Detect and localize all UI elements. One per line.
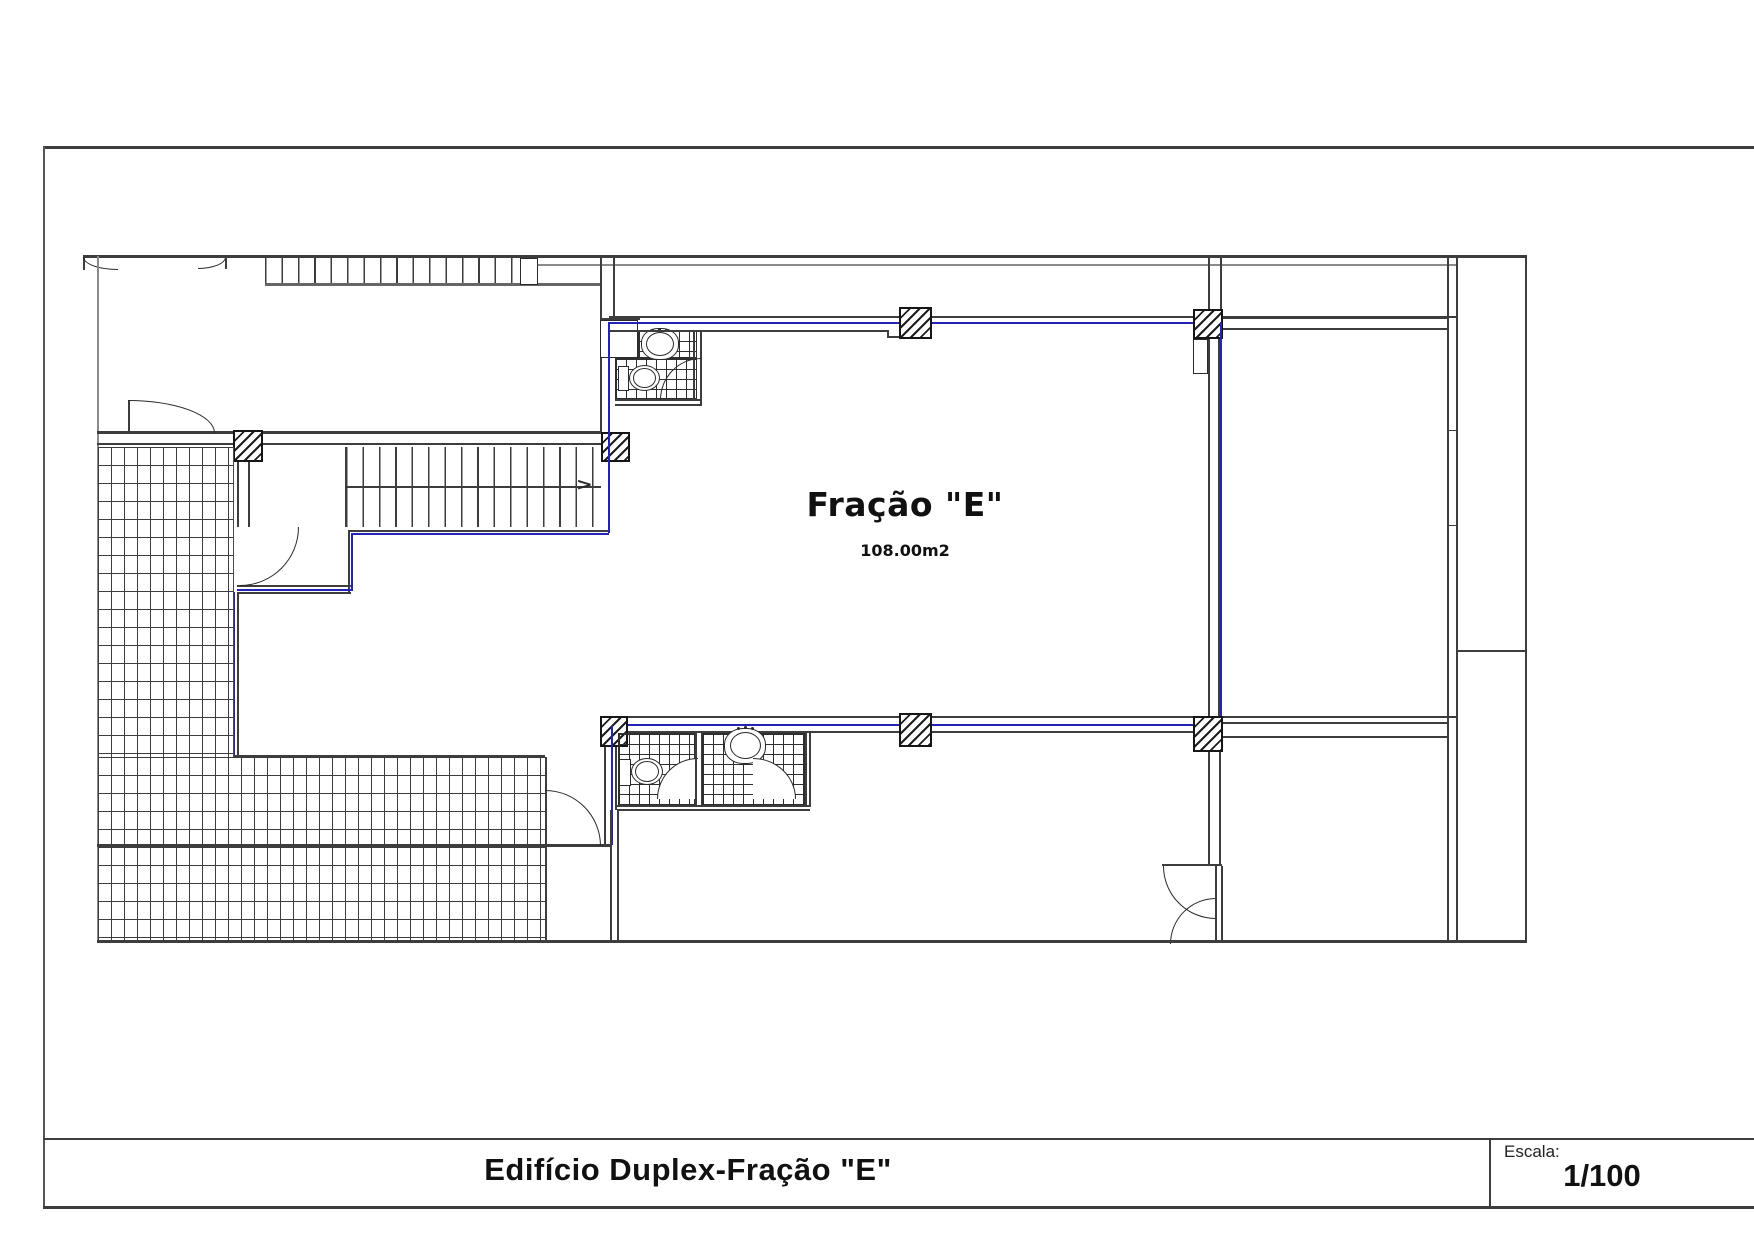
wall: [1220, 256, 1222, 309]
wall: [604, 747, 606, 845]
wall: [1456, 256, 1458, 942]
stair-direction-arrow: >: [576, 474, 593, 494]
wall: [237, 592, 351, 594]
wall: [1223, 328, 1447, 330]
toilet-bowl-inner: [633, 368, 656, 388]
vanity-counter: [600, 320, 638, 358]
wall: [237, 592, 239, 757]
wall: [1447, 256, 1449, 942]
drawing-title: Edifício Duplex-Fração "E": [43, 1152, 1333, 1188]
door-arc-lower-right-b: [1170, 898, 1216, 944]
wall: [613, 256, 615, 318]
wall-bottom: [97, 940, 1527, 943]
wall: [97, 443, 601, 445]
door-arc-left-room: [128, 400, 215, 433]
stair-landing-post: [520, 258, 538, 285]
wall: [545, 757, 547, 940]
titleblock-divider: [1489, 1138, 1491, 1208]
door-arc-top-left: [83, 257, 118, 270]
wall-right: [1525, 256, 1527, 942]
stairs-midline: [346, 486, 601, 488]
column-hatch: [899, 713, 932, 747]
wall: [1219, 752, 1221, 866]
faucet-dot: [737, 727, 740, 730]
wall-unit-right: [1208, 339, 1210, 716]
column-hatch: [1193, 716, 1223, 752]
toilet-tank: [618, 366, 629, 391]
door-leaf: [225, 256, 227, 269]
wall: [615, 747, 617, 810]
titleblock-top-line: [43, 1138, 1754, 1140]
wall: [617, 810, 619, 940]
terrace-edge: [233, 447, 234, 757]
unit-boundary-stair: [351, 533, 609, 535]
window-cap: [1447, 525, 1458, 526]
wall: [1208, 752, 1210, 866]
wall: [237, 462, 239, 527]
column-hatch: [601, 432, 630, 462]
wall-unit-top-inner: [609, 330, 887, 332]
wall: [617, 809, 810, 811]
drawing-sheet: { "drawing": { "room_label": "Fração \"E…: [0, 0, 1754, 1241]
sink-basin: [646, 332, 674, 356]
wall: [1223, 317, 1447, 319]
scale-value: 1/100: [1492, 1158, 1712, 1194]
border-top: [43, 146, 1754, 149]
toilet-bowl-inner: [635, 761, 659, 782]
wall: [237, 585, 351, 587]
wall-step: [887, 336, 899, 338]
faucet-dot: [744, 726, 747, 729]
wall: [610, 810, 612, 940]
unit-boundary: [237, 589, 351, 591]
wall: [1223, 736, 1447, 738]
wall: [695, 733, 697, 807]
border-left: [43, 146, 45, 1208]
room-label: Fração "E": [705, 485, 1105, 524]
door-arc-top-left-2: [198, 257, 226, 269]
window-cap: [1447, 430, 1458, 431]
unit-boundary-right: [1220, 322, 1222, 726]
door-arc-hall: [240, 527, 299, 586]
wall: [805, 733, 807, 807]
sink-basin: [730, 732, 761, 759]
door-arc-terrace: [545, 790, 601, 846]
wall: [809, 733, 811, 807]
wall: [1223, 722, 1447, 724]
wall-nib: [1193, 339, 1208, 374]
door-jamb: [1215, 866, 1217, 942]
wall-unit-bottom: [628, 716, 1456, 718]
stairs-upper: [265, 258, 533, 283]
wall: [348, 530, 350, 592]
column-hatch: [1193, 309, 1223, 339]
border-bottom: [43, 1206, 1754, 1209]
terrace-tiles-bottom: [98, 757, 545, 940]
wall: [248, 462, 250, 527]
wall: [617, 805, 810, 807]
unit-boundary: [351, 533, 353, 591]
room-area: 108.00m2: [705, 541, 1105, 560]
column-hatch: [233, 430, 263, 462]
unit-boundary: [608, 322, 610, 533]
stairs-upper-edge: [265, 283, 601, 286]
terrace-tiles-left: [98, 447, 233, 757]
wall: [1457, 650, 1525, 652]
faucet-dot: [751, 727, 754, 730]
toilet-tank: [619, 759, 631, 786]
column-hatch: [899, 307, 932, 339]
wall: [615, 404, 702, 406]
wall: [350, 530, 609, 532]
wall: [1208, 256, 1210, 309]
wall-top-inner: [533, 264, 1456, 266]
door-jamb: [1221, 866, 1223, 942]
